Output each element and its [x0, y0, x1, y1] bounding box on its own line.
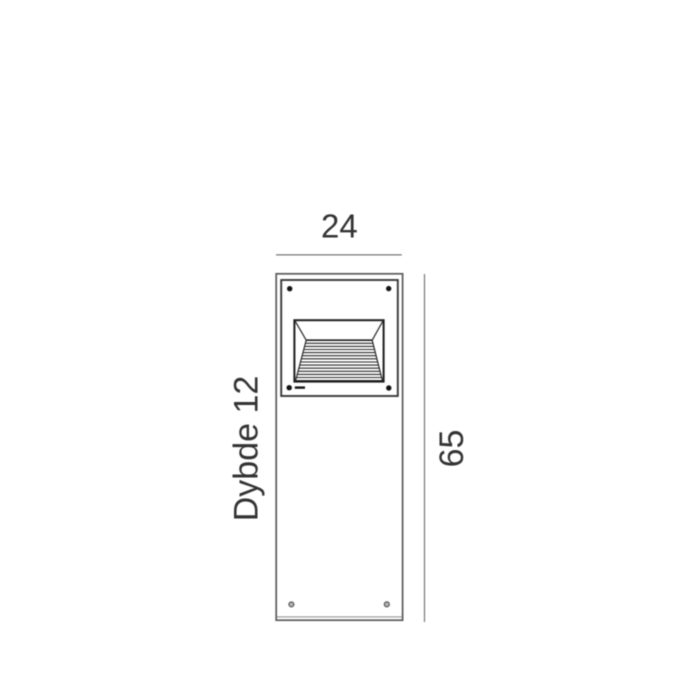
svg-text:Dybde 12: Dybde 12 — [228, 376, 266, 522]
svg-text:24: 24 — [321, 208, 358, 245]
svg-text:65: 65 — [433, 430, 471, 468]
